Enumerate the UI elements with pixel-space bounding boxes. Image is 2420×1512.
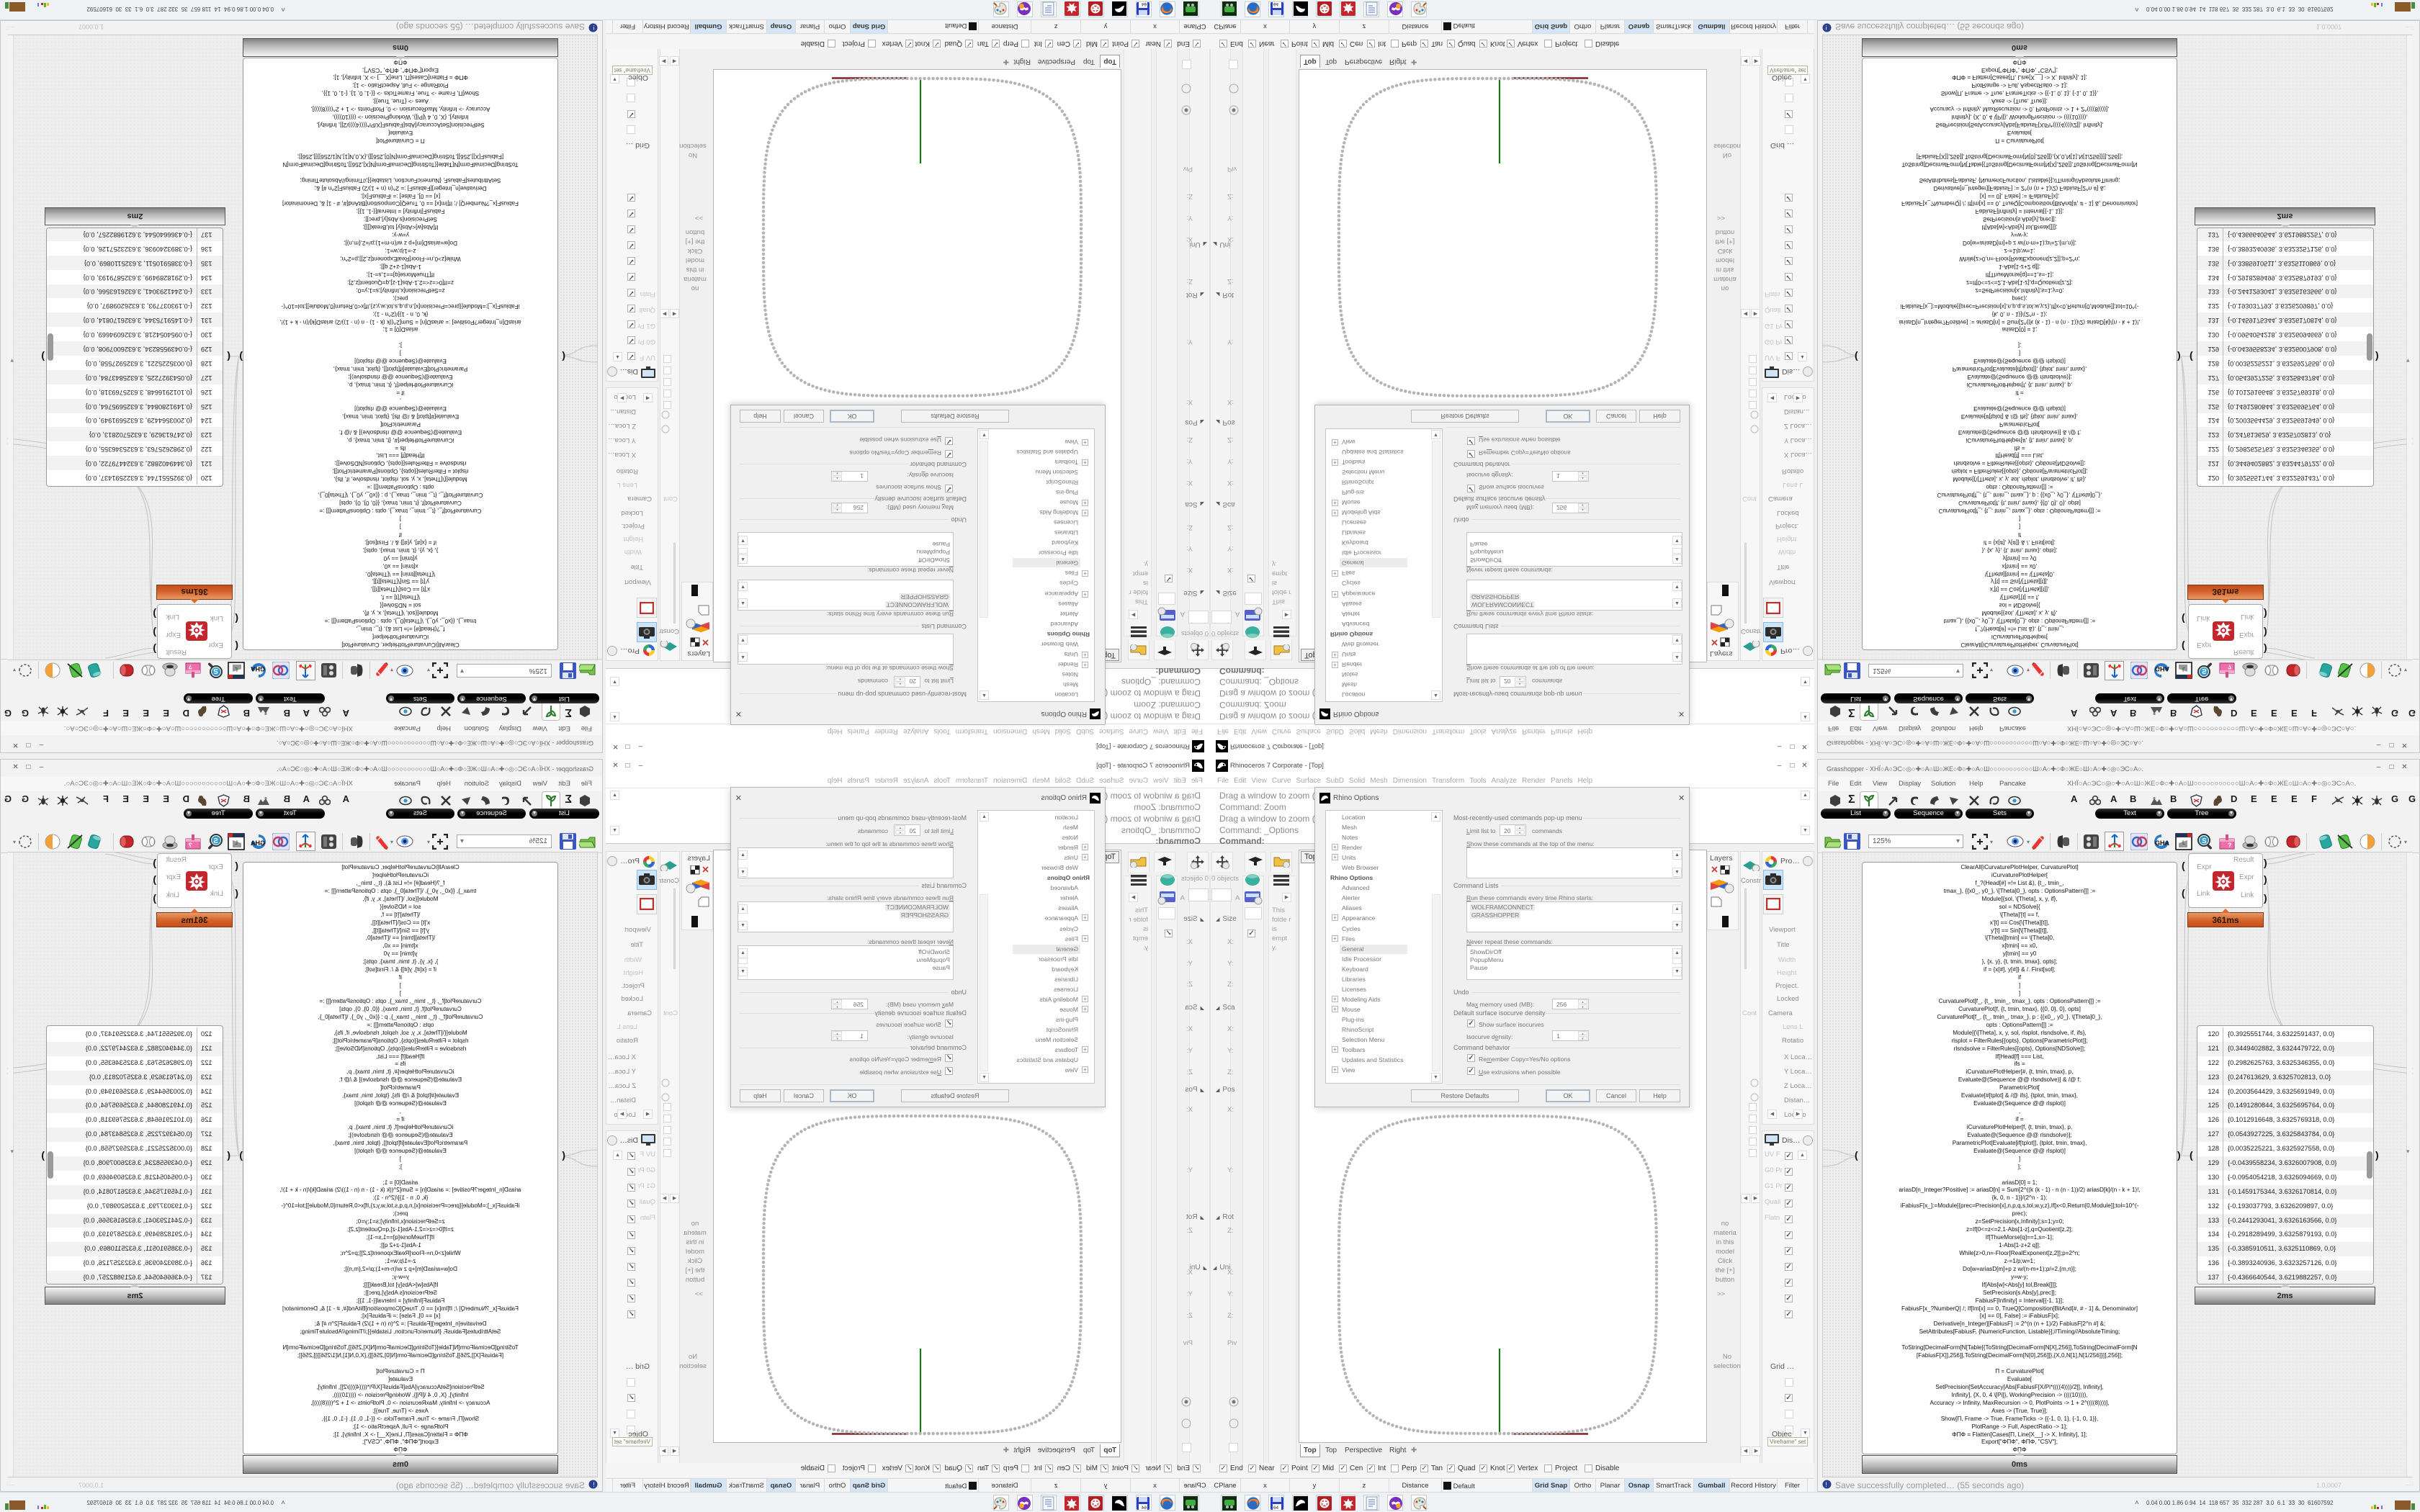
svg-text:L: L — [2182, 840, 2186, 846]
svg-text:GHA: GHA — [251, 840, 266, 847]
svg-text:64: 64 — [1273, 1506, 1279, 1511]
svg-text:!: ! — [593, 24, 595, 31]
svg-text:?: ? — [2228, 663, 2232, 670]
svg-text:GHA: GHA — [2155, 840, 2170, 847]
svg-text:?: ? — [189, 663, 193, 670]
svg-text:64: 64 — [1273, 1, 1279, 6]
svg-text:64: 64 — [1141, 1, 1147, 6]
svg-text:S: S — [213, 667, 218, 675]
svg-text:L: L — [2182, 666, 2186, 672]
svg-text:S: S — [213, 837, 218, 845]
svg-text:GHA: GHA — [2155, 665, 2170, 672]
svg-text:S: S — [2202, 667, 2207, 675]
svg-text:?: ? — [189, 842, 193, 849]
svg-text:64: 64 — [1141, 1506, 1147, 1511]
svg-text:L: L — [234, 666, 238, 672]
svg-text:?: ? — [2228, 842, 2232, 849]
svg-text:GHA: GHA — [251, 665, 266, 672]
svg-text:!: ! — [1825, 24, 1827, 31]
svg-text:!: ! — [1825, 1481, 1827, 1488]
svg-text:L: L — [234, 840, 238, 846]
svg-text:!: ! — [593, 1481, 595, 1488]
svg-text:S: S — [2202, 837, 2207, 845]
